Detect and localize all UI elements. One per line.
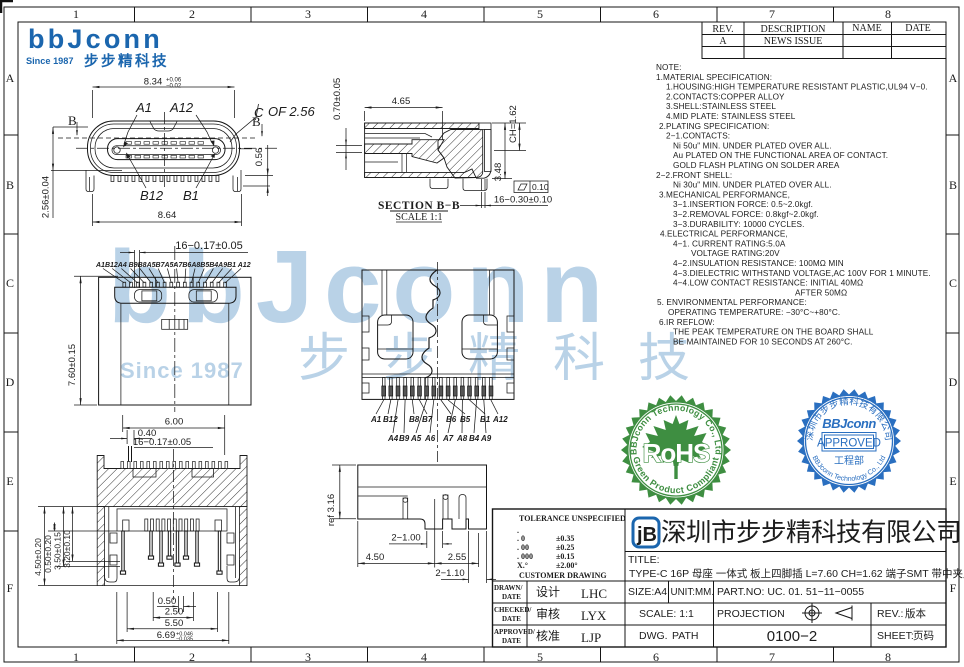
svg-text:SCALE 1:1: SCALE 1:1	[396, 212, 443, 223]
svg-text:4−2.INSULATION RESISTANCE: 1: 4−2.INSULATION RESISTANCE: 100MΩ MIN	[673, 259, 844, 268]
svg-text:3.SHELL:STAINLESS STEEL: 3.SHELL:STAINLESS STEEL	[666, 102, 776, 111]
svg-text:DATE: DATE	[502, 593, 521, 601]
svg-text:E: E	[6, 474, 13, 488]
svg-text:A1: A1	[135, 100, 152, 115]
svg-text:5.50: 5.50	[165, 618, 184, 629]
svg-text:APPROVED/: APPROVED/	[494, 628, 536, 636]
svg-text:6: 6	[653, 650, 659, 664]
svg-text:3.MECHANICAL PERFORMANCE,: 3.MECHANICAL PERFORMANCE,	[659, 190, 790, 199]
svg-text:4−1. CURRENT RATING:5.0A: 4−1. CURRENT RATING:5.0A	[673, 239, 786, 248]
svg-text:A: A	[719, 36, 727, 47]
svg-text:1.HOUSING:HIGH TEMPERATURE R: 1.HOUSING:HIGH TEMPERATURE RESISTANT PLA…	[666, 83, 928, 92]
svg-text:7: 7	[769, 650, 775, 664]
svg-text:6.00: 6.00	[165, 417, 184, 428]
svg-text:3.48: 3.48	[493, 163, 504, 182]
svg-text:Since 1987: Since 1987	[120, 358, 244, 383]
svg-text:7.60±0.15: 7.60±0.15	[67, 344, 78, 386]
svg-text:5: 5	[537, 7, 543, 21]
svg-text:D: D	[949, 375, 958, 389]
svg-text:4.MID PLATE: STAINLESS STEE: 4.MID PLATE: STAINLESS STEEL	[666, 112, 796, 121]
svg-text:. 00: . 00	[517, 543, 529, 552]
svg-text:UNIT:MM.: UNIT:MM.	[671, 587, 715, 598]
svg-text:±0.15: ±0.15	[556, 552, 574, 561]
svg-text:1: 1	[73, 650, 79, 664]
svg-text:B: B	[68, 113, 77, 128]
svg-text:8.34: 8.34	[144, 77, 163, 88]
svg-text:2.PLATING SPECIFICATION:: 2.PLATING SPECIFICATION:	[659, 122, 769, 131]
svg-text:NOTE:: NOTE:	[656, 63, 682, 72]
svg-text:2.CONTACTS:COPPER ALLOY: 2.CONTACTS:COPPER ALLOY	[666, 92, 785, 101]
svg-text:6: 6	[653, 7, 659, 21]
svg-text:4: 4	[421, 7, 427, 21]
svg-text:APPROVED: APPROVED	[817, 438, 881, 450]
svg-text:NEWS ISSUE: NEWS ISSUE	[764, 36, 823, 47]
svg-text:ref 3.16: ref 3.16	[326, 494, 337, 526]
svg-text:A12: A12	[492, 415, 508, 424]
svg-text:A: A	[6, 71, 15, 85]
svg-text:THE PEAK TEMPERATURE ON TH: THE PEAK TEMPERATURE ON THE BOARD SHALL	[673, 328, 874, 337]
svg-text:Au PLATED ON THE FUNCTIONA: Au PLATED ON THE FUNCTIONAL AREA OF CONT…	[673, 151, 888, 160]
svg-text:REV.: REV.	[712, 24, 733, 35]
svg-text:DRAWN/: DRAWN/	[494, 584, 523, 592]
svg-text:DWG.: DWG.	[639, 630, 668, 642]
svg-text:6.69: 6.69	[157, 630, 176, 641]
svg-text:DESCRIPTION: DESCRIPTION	[760, 24, 825, 35]
svg-text:F: F	[7, 581, 14, 595]
svg-text:1: 1	[73, 7, 79, 21]
svg-text:3: 3	[305, 650, 311, 664]
svg-text:3−1.INSERTION FORCE: 0.5~2.0: 3−1.INSERTION FORCE: 0.5~2.0kgf.	[673, 200, 813, 209]
svg-text:A6: A6	[424, 434, 436, 443]
svg-text:3−2.REMOVAL FORCE: 0.8kgf~2.: 3−2.REMOVAL FORCE: 0.8kgf~2.0kgf.	[673, 210, 819, 219]
svg-text:2−1.CONTACTS:: 2−1.CONTACTS:	[666, 132, 730, 141]
svg-text:F: F	[950, 581, 957, 595]
svg-text:LJP: LJP	[581, 630, 601, 645]
svg-text:A7: A7	[442, 434, 454, 443]
svg-text:B: B	[949, 178, 957, 192]
svg-text:RoHS: RoHS	[643, 438, 710, 468]
svg-text:C: C	[949, 276, 957, 290]
svg-text:B: B	[6, 178, 14, 192]
svg-text:CH=1.62: CH=1.62	[508, 105, 519, 143]
svg-text:B4: B4	[469, 434, 480, 443]
svg-text:CUSTOMER DRAWING: CUSTOMER DRAWING	[519, 571, 607, 580]
svg-text:2: 2	[189, 650, 195, 664]
svg-text:步步精科技: 步步精科技	[84, 52, 169, 70]
svg-text:工程部: 工程部	[834, 454, 864, 467]
svg-text:OF 2.56: OF 2.56	[268, 104, 316, 119]
svg-text:DATE: DATE	[502, 615, 521, 623]
svg-text:8: 8	[885, 650, 891, 664]
svg-text:. 000: . 000	[517, 552, 533, 561]
svg-text:A4: A4	[387, 434, 399, 443]
svg-text:±2.00°: ±2.00°	[556, 561, 578, 570]
svg-text:B9: B9	[399, 434, 410, 443]
svg-text:BE MAINTAINED FOR 10 SECON: BE MAINTAINED FOR 10 SECONDS AT 260°C.	[673, 337, 853, 346]
svg-text:0.50: 0.50	[158, 596, 177, 607]
svg-text:OPERATING TEMPERATURE: −30°C: OPERATING TEMPERATURE: −30°C~+80°C.	[668, 308, 840, 317]
svg-text:bbJconn: bbJconn	[28, 24, 163, 54]
svg-text:4: 4	[421, 650, 427, 664]
svg-text:Ni 30u" MIN. UNDER PLATED: Ni 30u" MIN. UNDER PLATED OVER ALL.	[673, 181, 832, 190]
svg-text:B12: B12	[383, 415, 398, 424]
svg-text:1.MATERIAL SPECIFICATION:: 1.MATERIAL SPECIFICATION:	[656, 73, 772, 82]
svg-text:TYPE-C 16P 母座 一体式 板上四脚插 L=7.60: TYPE-C 16P 母座 一体式 板上四脚插 L=7.60 CH=1.62 端…	[629, 567, 964, 580]
svg-text:LHC: LHC	[581, 586, 607, 601]
svg-text:Since 1987: Since 1987	[26, 56, 74, 66]
svg-text:±0.35: ±0.35	[556, 534, 574, 543]
svg-text:B: B	[252, 114, 261, 129]
svg-text:8.64: 8.64	[158, 210, 177, 221]
svg-text:0.70±0.05: 0.70±0.05	[332, 78, 343, 120]
svg-text:TOLERANCE UNSPECIFIED: TOLERANCE UNSPECIFIED	[519, 514, 626, 523]
svg-text:B1: B1	[183, 188, 199, 203]
svg-text:0.56: 0.56	[254, 148, 265, 167]
svg-text:16−0.17±0.05: 16−0.17±0.05	[133, 437, 191, 448]
svg-text:2.56±0.04: 2.56±0.04	[41, 176, 52, 218]
svg-text:3−3.DURABILITY: 10000 CYCLES: 3−3.DURABILITY: 10000 CYCLES.	[673, 220, 804, 229]
svg-text:B12: B12	[140, 188, 164, 203]
svg-text:B5: B5	[460, 415, 471, 424]
svg-text:4−4.LOW CONTACT RESISTANCE:: 4−4.LOW CONTACT RESISTANCE: INITIAL 40MΩ	[673, 279, 863, 288]
svg-text:SCALE: 1:1: SCALE: 1:1	[639, 608, 694, 620]
svg-text:6.IR REFLOW:: 6.IR REFLOW:	[659, 318, 715, 327]
svg-text:4.ELECTRICAL PERFORMANCE,: 4.ELECTRICAL PERFORMANCE,	[660, 230, 788, 239]
svg-text:Ni 50u" MIN. UNDER PLATED: Ni 50u" MIN. UNDER PLATED OVER ALL.	[673, 141, 832, 150]
svg-text:PATH: PATH	[672, 630, 698, 642]
svg-text:SIZE:A4: SIZE:A4	[628, 586, 667, 598]
svg-text:A1: A1	[370, 415, 382, 424]
svg-text:3.20±0.10: 3.20±0.10	[62, 530, 72, 568]
svg-text:4−3.DIELECTRIC WITHSTAND VOL: 4−3.DIELECTRIC WITHSTAND VOLTAGE,AC 100V…	[673, 269, 931, 278]
svg-text:设计: 设计	[536, 585, 560, 599]
svg-text:3.50±0.15: 3.50±0.15	[53, 532, 63, 570]
svg-text:B8: B8	[409, 415, 420, 424]
svg-text:核准: 核准	[536, 629, 560, 643]
svg-text:SHEET:: SHEET:	[877, 630, 914, 642]
svg-text:8: 8	[885, 7, 891, 21]
svg-text:DATE: DATE	[502, 637, 521, 645]
svg-text:X.°: X.°	[517, 561, 528, 570]
svg-text:TITLE:: TITLE:	[628, 554, 660, 566]
svg-text:2.55: 2.55	[448, 552, 467, 563]
svg-text:A9: A9	[480, 434, 492, 443]
svg-text:GOLD FLASH PLATING ON SOLD: GOLD FLASH PLATING ON SOLDER AREA	[673, 161, 840, 170]
svg-text:LYX: LYX	[581, 608, 607, 623]
svg-text:AFTER 50MΩ: AFTER 50MΩ	[795, 288, 847, 297]
svg-text:A: A	[949, 71, 958, 85]
svg-text:2−1.10: 2−1.10	[435, 568, 464, 579]
svg-text:C: C	[6, 276, 14, 290]
svg-text:NAME: NAME	[852, 23, 881, 34]
svg-text:0.50±0.20: 0.50±0.20	[43, 535, 53, 573]
svg-text:3: 3	[305, 7, 311, 21]
svg-text:5. ENVIRONMENTAL PERFORMANCE: 5. ENVIRONMENTAL PERFORMANCE:	[657, 298, 807, 307]
svg-text:16−0.30±0.10: 16−0.30±0.10	[494, 195, 552, 206]
svg-text:0.10: 0.10	[532, 182, 549, 192]
svg-text:A5: A5	[410, 434, 422, 443]
svg-text:4.50±0.20: 4.50±0.20	[33, 538, 43, 576]
svg-text:D: D	[6, 375, 15, 389]
svg-text:PART.NO: UC. 01. 51−11−0055: PART.NO: UC. 01. 51−11−0055	[717, 586, 864, 598]
svg-text:A1B12A4 B9B8A5B7A5A7B6A8B5B4A9: A1B12A4 B9B8A5B7A5A7B6A8B5B4A9B1 A12	[95, 262, 251, 269]
svg-text:2.50: 2.50	[165, 607, 184, 618]
svg-text:16−0.17±0.05: 16−0.17±0.05	[175, 240, 243, 252]
svg-text:BBJconn: BBJconn	[822, 416, 876, 431]
svg-text:A12: A12	[169, 100, 194, 115]
svg-text:VOLTAGE RATING:20V: VOLTAGE RATING:20V	[691, 249, 780, 258]
svg-text:审核: 审核	[536, 606, 560, 621]
svg-text:7: 7	[769, 7, 775, 21]
svg-text:PROJECTION: PROJECTION	[717, 608, 785, 620]
svg-text:2−2.FRONT SHELL:: 2−2.FRONT SHELL:	[656, 171, 732, 180]
svg-text:±0.25: ±0.25	[556, 543, 574, 552]
svg-text:DATE: DATE	[905, 23, 931, 34]
svg-text:jB: jB	[636, 524, 657, 546]
svg-text:2: 2	[189, 7, 195, 21]
svg-text:2−1.00: 2−1.00	[391, 533, 420, 544]
svg-text:E: E	[949, 474, 956, 488]
svg-text:. 0: . 0	[517, 534, 525, 543]
svg-text:−0.02: −0.02	[166, 84, 182, 90]
svg-text:4.50: 4.50	[366, 552, 385, 563]
svg-text:0100−2: 0100−2	[767, 628, 817, 645]
svg-text:版本: 版本	[905, 607, 926, 620]
svg-text:−0.035: −0.035	[176, 637, 193, 643]
svg-text:4.65: 4.65	[392, 96, 411, 107]
svg-text:A8: A8	[456, 434, 468, 443]
svg-text:SECTION B−B: SECTION B−B	[378, 200, 460, 212]
svg-text:CHECKED/: CHECKED/	[494, 606, 532, 614]
svg-text:5: 5	[537, 650, 543, 664]
svg-text:页码: 页码	[913, 630, 934, 642]
svg-text:REV.:: REV.:	[877, 608, 903, 620]
svg-text:深圳市步步精科技有限公司: 深圳市步步精科技有限公司	[661, 519, 961, 547]
